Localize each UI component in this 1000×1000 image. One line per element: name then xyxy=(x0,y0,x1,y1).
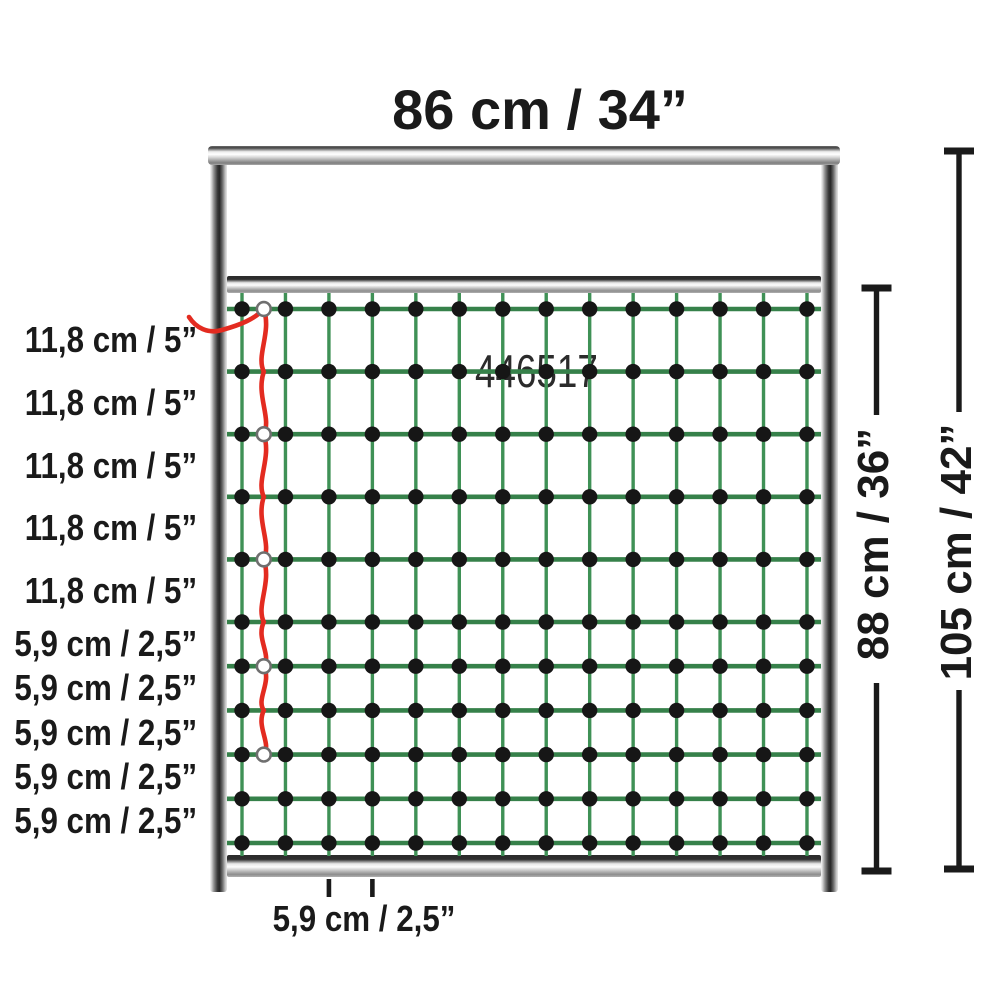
net-knot-dot xyxy=(582,703,597,718)
net-knot-dot xyxy=(756,791,771,806)
left-dimension-label: 11,8 cm / 5” xyxy=(25,322,197,358)
net-knot-dot xyxy=(582,489,597,504)
cord-ring xyxy=(257,553,271,567)
cord-ring xyxy=(257,302,271,316)
net-knot-dot xyxy=(234,489,249,504)
net-knot-dot xyxy=(799,835,814,850)
net-knot-dot xyxy=(669,703,684,718)
left-dimension-label: 5,9 cm / 2,5” xyxy=(14,715,197,751)
net-knot-dot xyxy=(234,301,249,316)
net-knot-dot xyxy=(625,552,640,567)
net-knot-dot xyxy=(539,747,554,762)
net-knot-dot xyxy=(365,703,380,718)
net-knot-dot xyxy=(625,489,640,504)
net-knot-dot xyxy=(756,835,771,850)
net-knot-dot xyxy=(321,835,336,850)
net-knot-dot xyxy=(799,791,814,806)
net-knot-dot xyxy=(756,364,771,379)
net-knot-dot xyxy=(799,614,814,629)
net-knot-dot xyxy=(582,835,597,850)
left-dimension-label: 5,9 cm / 2,5” xyxy=(14,626,197,662)
net-knot-dot xyxy=(669,835,684,850)
net-knot-dot xyxy=(452,364,467,379)
net-knot-dot xyxy=(712,364,727,379)
net-knot-dot xyxy=(799,364,814,379)
net-knot-dot xyxy=(539,791,554,806)
net-knot-dot xyxy=(408,489,423,504)
net-knot-dot xyxy=(408,301,423,316)
net-knot-dot xyxy=(452,427,467,442)
net-knot-dot xyxy=(278,552,293,567)
net-knot-dot xyxy=(582,552,597,567)
net-knot-dot xyxy=(756,427,771,442)
net-knot-dot xyxy=(408,659,423,674)
net-knot-dot xyxy=(712,427,727,442)
net-knot-dot xyxy=(669,791,684,806)
net-knot-dot xyxy=(756,747,771,762)
left-dimension-label: 11,8 cm / 5” xyxy=(25,385,197,421)
net-knot-dot xyxy=(669,552,684,567)
net-knot-dot xyxy=(365,552,380,567)
net-knot-dot xyxy=(495,552,510,567)
left-dimension-label: 11,8 cm / 5” xyxy=(25,448,197,484)
net-knot-dot xyxy=(452,791,467,806)
net-knot-dot xyxy=(799,427,814,442)
net-knot-dot xyxy=(539,703,554,718)
net-knot-dot xyxy=(365,427,380,442)
net-knot-dot xyxy=(539,427,554,442)
net-knot-dot xyxy=(756,489,771,504)
net-knot-dot xyxy=(365,791,380,806)
net-knot-dot xyxy=(539,614,554,629)
net-knot-dot xyxy=(495,301,510,316)
net-knot-dot xyxy=(452,659,467,674)
net-knot-dot xyxy=(234,659,249,674)
net-knot-dot xyxy=(756,659,771,674)
net-knot-dot xyxy=(321,552,336,567)
net-knot-dot xyxy=(799,747,814,762)
net-knot-dot xyxy=(625,364,640,379)
cord-ring xyxy=(257,748,271,762)
net-knot-dot xyxy=(799,703,814,718)
net-knot-dot xyxy=(321,791,336,806)
net-knot-dot xyxy=(278,659,293,674)
net-knot-dot xyxy=(669,659,684,674)
net-knot-dot xyxy=(234,703,249,718)
net-knot-dot xyxy=(321,364,336,379)
net-knot-dot xyxy=(756,301,771,316)
drawstring-cord xyxy=(189,309,266,755)
net-knot-dot xyxy=(234,791,249,806)
net-knot-dot xyxy=(452,703,467,718)
net-knot-dot xyxy=(582,427,597,442)
net-knot-dot xyxy=(495,791,510,806)
net-knot-dot xyxy=(365,364,380,379)
net-knot-dot xyxy=(669,614,684,629)
net-knot-dot xyxy=(582,791,597,806)
net-knot-dot xyxy=(278,364,293,379)
net-knot-dot xyxy=(365,489,380,504)
net-knot-dot xyxy=(669,747,684,762)
net-knot-dot xyxy=(278,791,293,806)
net-knot-dot xyxy=(539,364,554,379)
net-knot-dot xyxy=(278,489,293,504)
net-knot-dot xyxy=(712,301,727,316)
net-knot-dot xyxy=(495,427,510,442)
net-knot-dot xyxy=(539,659,554,674)
width-dimension-label: 86 cm / 34” xyxy=(392,77,688,142)
net-knot-dot xyxy=(452,552,467,567)
net-knot-dot xyxy=(408,791,423,806)
net-knot-dot xyxy=(321,703,336,718)
net-knot-dot xyxy=(756,614,771,629)
net-knot-dot xyxy=(234,835,249,850)
net-knot-dot xyxy=(712,659,727,674)
net-knot-dot xyxy=(234,364,249,379)
cord-ring xyxy=(257,427,271,441)
net-knot-dot xyxy=(321,427,336,442)
height-dimension-label-inner: 88 cm / 36” xyxy=(852,428,896,660)
net-knot-dot xyxy=(495,614,510,629)
net-knot-dot xyxy=(539,552,554,567)
net-knot-dot xyxy=(582,659,597,674)
net-knot-dot xyxy=(712,489,727,504)
net-knot-dot xyxy=(756,703,771,718)
net-knot-dot xyxy=(408,835,423,850)
net-knot-dot xyxy=(408,747,423,762)
cord-ring xyxy=(257,659,271,673)
net-knot-dot xyxy=(539,301,554,316)
left-dimension-label: 11,8 cm / 5” xyxy=(25,510,197,546)
net-knot-dot xyxy=(234,552,249,567)
net-knot-dot xyxy=(452,301,467,316)
net-knot-dot xyxy=(408,552,423,567)
net-knot-dot xyxy=(582,301,597,316)
left-dimension-label: 11,8 cm / 5” xyxy=(25,573,197,609)
net-knot-dot xyxy=(365,301,380,316)
net-knot-dot xyxy=(408,364,423,379)
net-knot-dot xyxy=(799,301,814,316)
net-knot-dot xyxy=(278,747,293,762)
net-knot-dot xyxy=(539,835,554,850)
net-knot-dot xyxy=(495,747,510,762)
net-knot-dot xyxy=(408,614,423,629)
net-knot-dot xyxy=(278,427,293,442)
net-knot-dot xyxy=(321,489,336,504)
net-knot-dot xyxy=(408,427,423,442)
net-knot-dot xyxy=(321,659,336,674)
net-knot-dot xyxy=(495,703,510,718)
net-knot-dot xyxy=(452,614,467,629)
net-knot-dot xyxy=(582,747,597,762)
net-knot-dot xyxy=(278,835,293,850)
fence-gate-diagram: 86 cm / 34” 446517 11,8 cm / 5”11,8 cm /… xyxy=(0,0,1000,1000)
net-knot-dot xyxy=(234,427,249,442)
net-knot-dot xyxy=(799,659,814,674)
net-knot-dot xyxy=(321,301,336,316)
net-knot-dot xyxy=(669,364,684,379)
left-dimension-label: 5,9 cm / 2,5” xyxy=(14,759,197,795)
net-knot-dot xyxy=(712,747,727,762)
net-knot-dot xyxy=(625,703,640,718)
net-knot-dot xyxy=(452,835,467,850)
net-knot-dot xyxy=(234,747,249,762)
net-knot-dot xyxy=(582,364,597,379)
net-knot-dot xyxy=(539,489,554,504)
net-knot-dot xyxy=(712,552,727,567)
net-knot-dot xyxy=(669,427,684,442)
net-knot-dot xyxy=(756,552,771,567)
net-knot-dot xyxy=(452,747,467,762)
net-knot-dot xyxy=(365,747,380,762)
net-knot-dot xyxy=(365,835,380,850)
net-knot-dot xyxy=(321,747,336,762)
net-knot-dot xyxy=(799,552,814,567)
net-knot-dot xyxy=(408,703,423,718)
net-knot-dot xyxy=(625,301,640,316)
net-knot-dot xyxy=(234,614,249,629)
net-knot-dot xyxy=(495,835,510,850)
net-knot-dot xyxy=(495,659,510,674)
left-dimension-label: 5,9 cm / 2,5” xyxy=(14,670,197,706)
net-knot-dot xyxy=(495,489,510,504)
mesh-width-label: 5,9 cm / 2,5” xyxy=(273,901,456,937)
net-knot-dot xyxy=(278,703,293,718)
net-knot-dot xyxy=(712,614,727,629)
net-knot-dot xyxy=(365,614,380,629)
net-knot-dot xyxy=(669,489,684,504)
net-knot-dot xyxy=(625,427,640,442)
net-knot-dot xyxy=(712,703,727,718)
net-knot-dot xyxy=(799,489,814,504)
height-dimension-label-outer: 105 cm / 42” xyxy=(935,424,979,681)
net-knot-dot xyxy=(278,301,293,316)
net-knot-dot xyxy=(365,659,380,674)
net-knot-dot xyxy=(625,835,640,850)
net-knot-dot xyxy=(321,614,336,629)
net-knot-dot xyxy=(582,614,597,629)
net-knot-dot xyxy=(712,835,727,850)
net-knot-dot xyxy=(625,614,640,629)
net-knot-dot xyxy=(625,747,640,762)
left-dimension-label: 5,9 cm / 2,5” xyxy=(14,803,197,839)
net-knot-dot xyxy=(712,791,727,806)
net-knot-dot xyxy=(452,489,467,504)
net-knot-dot xyxy=(625,659,640,674)
net-knot-dot xyxy=(669,301,684,316)
net-knot-dot xyxy=(625,791,640,806)
net-knot-dot xyxy=(278,614,293,629)
net-knot-dot xyxy=(495,364,510,379)
